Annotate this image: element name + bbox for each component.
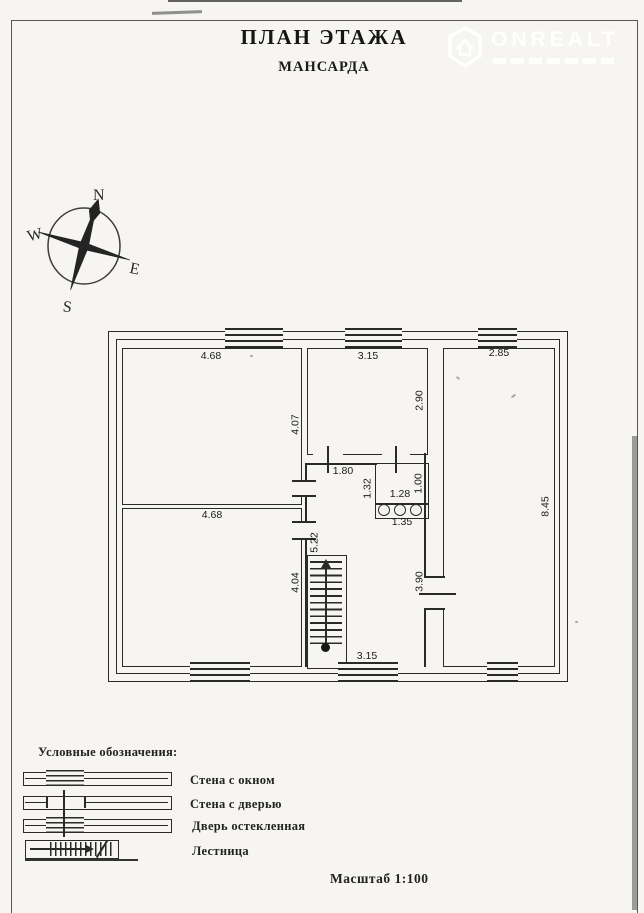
door-jamb-connector [424,576,445,578]
legend-item-label: Стена с дверью [190,797,282,812]
washbasin-icon [378,504,390,516]
dim-hall-width: 1.80 [322,465,364,477]
window-symbol [225,328,283,348]
legend-door-swing-tick [63,813,65,837]
scale-label: Масштаб 1:100 [330,871,429,887]
dim-bath-left: 1.32 [362,471,375,507]
washbasin-icon [410,504,422,516]
window-symbol [345,328,402,348]
door-jamb-tick [292,495,316,497]
scan-speck [575,621,578,623]
room-top-middle [307,348,428,455]
dim-hall-height: 5.22 [309,525,322,561]
dim-room2-width: 4.68 [191,509,233,521]
door-jamb-tick [292,521,316,523]
legend-wall-midline [25,802,46,804]
legend-window-glyph [46,770,84,786]
dim-room3-height: 2.90 [414,383,427,419]
window-symbol [190,662,250,682]
window-symbol [478,328,517,348]
legend-heading: Условные обозначения: [38,745,178,760]
door-jamb-connector [424,608,445,610]
dim-room4-width: 2.85 [478,347,520,359]
door-swing-tick [395,446,397,473]
legend-item-label: Лестница [192,844,249,859]
legend-item-label: Дверь остекленная [192,819,305,834]
legend-stair-arrow-head [86,845,94,853]
dim-bath-height: 1.00 [413,466,426,502]
legend: Условные обозначения: Стена с окном Стен… [0,740,644,870]
legend-item-label: Стена с окном [190,773,275,788]
stair-direction-line [325,566,327,646]
stair-arrow-head [321,559,331,568]
door-jamb-tick [292,480,316,482]
legend-wall-midline [86,802,168,804]
room-right [443,348,555,667]
dim-right-wall: 3.90 [414,564,427,600]
dim-bath-niche: 1.35 [381,516,423,528]
dim-hall-bottom-width: 3.15 [346,650,388,662]
legend-door-jamb [84,796,86,808]
window-symbol [487,662,518,682]
dim-room1-height: 4.07 [290,407,303,443]
stair-start-dot [321,643,330,652]
washbasin-icon [394,504,406,516]
dim-room2-height: 4.04 [290,565,303,601]
room-bottom-left [122,508,302,667]
legend-stair-baseline [25,859,138,861]
legend-stair-arrow-line [30,848,88,850]
legend-window-glyph [46,817,84,833]
dim-room4-height: 8.45 [540,489,553,525]
dim-room1-width: 4.68 [190,350,232,362]
room-top-left [122,348,302,505]
window-symbol [338,662,398,682]
legend-door-jamb [46,796,48,808]
legend-door-swing-tick [63,790,65,814]
dim-room3-width: 3.15 [347,350,389,362]
